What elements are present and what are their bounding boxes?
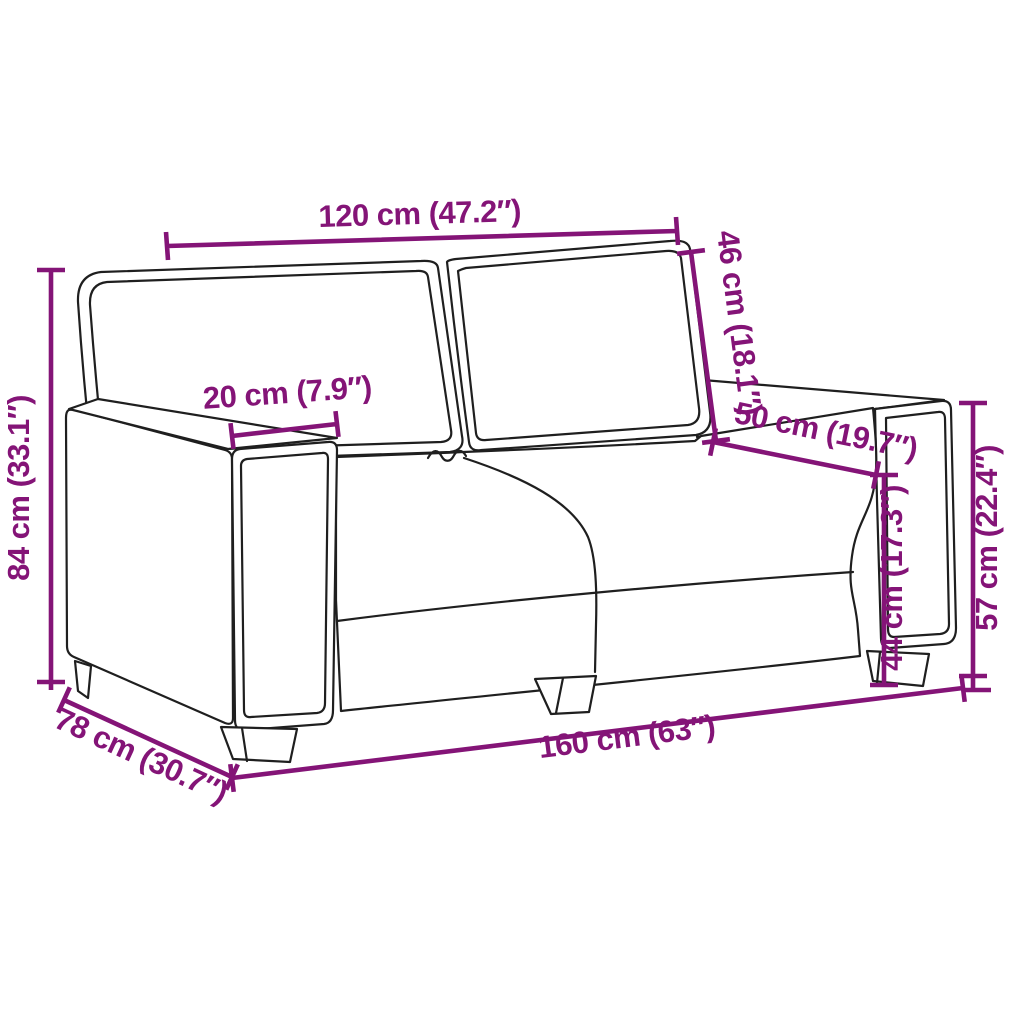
dimension-label-overall-height: 84 cm (33.1″) [1, 395, 36, 581]
dimension-label-overall-depth: 78 cm (30.7″) [50, 701, 234, 810]
back-cushion-right [447, 241, 710, 451]
dimension-seat-height: 44 cm (17.3″) [870, 475, 909, 685]
dimension-label-armrest-height: 57 cm (22.4″) [969, 445, 1004, 631]
sofa-illustration [66, 241, 956, 762]
left-armrest-front [232, 442, 337, 730]
dimension-armrest-height: 57 cm (22.4″) [959, 403, 1004, 690]
dimension-label-back-width: 120 cm (47.2″) [318, 193, 522, 234]
center-leg [535, 676, 596, 714]
dimension-overall-height-line [37, 270, 65, 690]
seat-outline [336, 408, 876, 711]
left-armrest [66, 399, 337, 762]
back-left-leg [75, 661, 91, 698]
seat-cushions [336, 408, 876, 711]
dimension-overall-height: 84 cm (33.1″) [1, 270, 65, 690]
dimension-label-overall-width: 160 cm (63″) [536, 708, 717, 765]
front-left-leg [221, 727, 297, 762]
sofa-dimension-diagram: 120 cm (47.2″) 46 cm (18.1″) 20 cm (7.9″… [0, 0, 1024, 1024]
dimension-label-seat-height: 44 cm (17.3″) [874, 485, 909, 671]
